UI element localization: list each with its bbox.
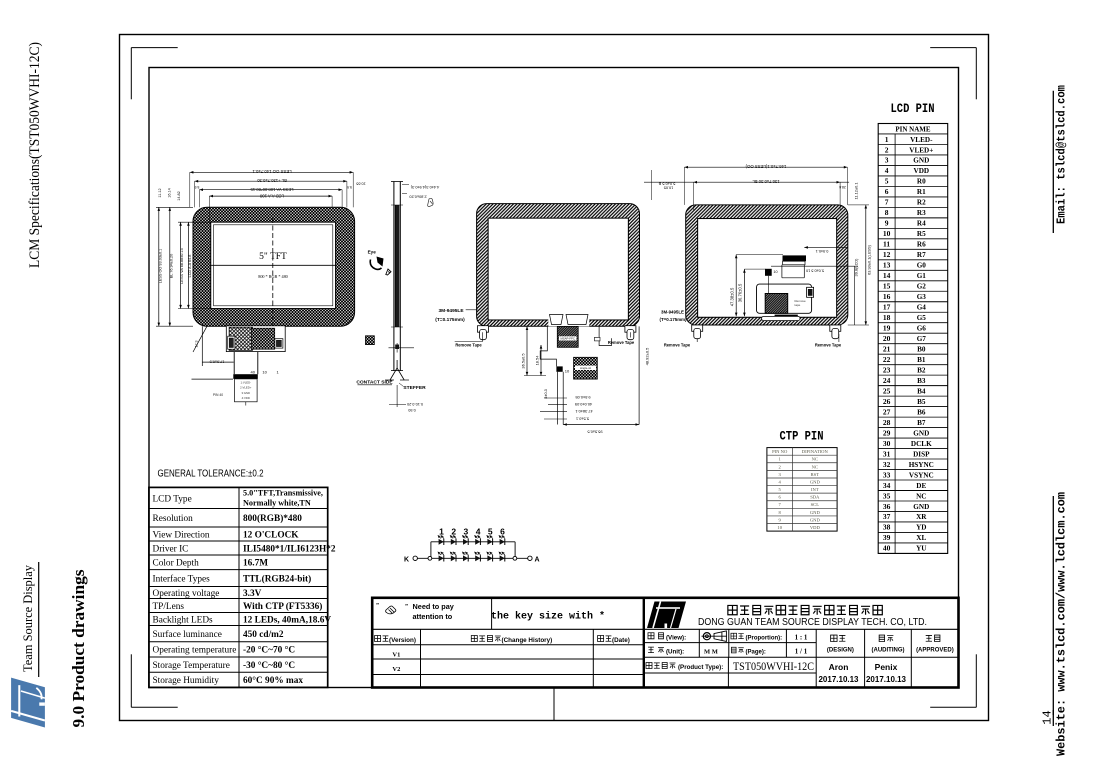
svg-text:TP/Lens: TP/Lens: [153, 602, 185, 612]
svg-text:4±0.3: 4±0.3: [543, 389, 548, 399]
svg-text:XR: XR: [916, 513, 927, 521]
svg-text:STEFFER: STEFFER: [403, 385, 426, 391]
svg-text:G4: G4: [917, 304, 927, 312]
svg-text:34: 34: [883, 481, 891, 490]
svg-text:2:VLED+: 2:VLED+: [240, 386, 252, 390]
svg-text:Website: www.tslcd.com/www.lcd: Website: www.tslcd.com/www.lcdlcm.com: [1055, 492, 1069, 756]
svg-text:CTP PIN: CTP PIN: [780, 430, 824, 444]
svg-text:5.9: 5.9: [195, 185, 200, 189]
svg-text:15: 15: [883, 282, 891, 291]
svg-text:R4: R4: [917, 220, 926, 228]
svg-text:11: 11: [883, 240, 890, 249]
svg-text:R7: R7: [917, 251, 926, 259]
svg-text:16.7M: 16.7M: [243, 559, 268, 569]
svg-text:60°C 90% max: 60°C 90% max: [243, 675, 303, 686]
svg-text:6: 6: [885, 187, 889, 196]
svg-text:LCD A.A 64.8: LCD A.A 64.8: [188, 255, 192, 278]
svg-text:K: K: [404, 556, 409, 563]
svg-text:(AUDITING): (AUDITING): [872, 648, 905, 654]
svg-text:R5: R5: [917, 230, 926, 238]
svg-text:12 LEDs, 40mA,18.6V: 12 LEDs, 40mA,18.6V: [243, 615, 331, 625]
svg-text:G5: G5: [917, 314, 927, 322]
svg-text:R6: R6: [917, 241, 926, 249]
svg-text:13: 13: [883, 261, 891, 270]
svg-text:5.0±0.5 10: 5.0±0.5 10: [806, 268, 824, 272]
svg-text:B3: B3: [917, 377, 926, 385]
svg-text:9.5±0.05: 9.5±0.05: [575, 395, 590, 400]
svg-text:16.14: 16.14: [168, 188, 172, 198]
svg-text:48.92±0.5: 48.92±0.5: [644, 347, 649, 366]
svg-text:18: 18: [883, 313, 891, 322]
svg-text:Email: tslcd@tslcd.com: Email: tslcd@tslcd.com: [1056, 85, 1069, 224]
svg-text:2017.10.13: 2017.10.13: [818, 675, 859, 684]
svg-text:RST: RST: [811, 472, 820, 477]
svg-text:LESS OO 93.03±0.1: LESS OO 93.03±0.1: [158, 249, 162, 284]
svg-text:4: 4: [885, 166, 889, 175]
svg-text:47.38±0.1: 47.38±0.1: [575, 409, 592, 414]
svg-text:5" TFT: 5" TFT: [259, 252, 287, 262]
svg-text:38: 38: [883, 523, 891, 532]
svg-text:3:GND: 3:GND: [242, 391, 251, 395]
svg-text:B5: B5: [917, 398, 926, 406]
svg-text:GND: GND: [913, 503, 929, 511]
svg-text:37: 37: [883, 512, 891, 521]
svg-text:4.4±0.3(4.9±0.3): 4.4±0.3(4.9±0.3): [410, 185, 439, 190]
svg-text:VDD: VDD: [914, 167, 930, 175]
svg-text:”: ”: [376, 603, 379, 609]
svg-text:8: 8: [885, 208, 889, 217]
svg-text:PIN NO: PIN NO: [772, 449, 788, 454]
svg-text:4: 4: [476, 527, 481, 537]
svg-text:B1: B1: [917, 356, 926, 364]
svg-text:Remove Tape: Remove Tape: [608, 340, 635, 345]
svg-text:24: 24: [883, 376, 891, 385]
svg-text:VSYNC: VSYNC: [909, 471, 934, 479]
svg-text:”: ”: [405, 604, 408, 610]
svg-text:Surface luminance: Surface luminance: [153, 629, 222, 640]
svg-text:12: 12: [883, 250, 891, 259]
svg-text:Remove Tape: Remove Tape: [664, 343, 691, 348]
svg-text:(DESIGN): (DESIGN): [827, 648, 854, 654]
svg-text:9.0 Product drawings: 9.0 Product drawings: [69, 569, 88, 727]
svg-text:GND: GND: [810, 517, 821, 522]
svg-text:40: 40: [250, 370, 255, 375]
svg-text:Operating voltage: Operating voltage: [153, 589, 220, 599]
svg-text:(Product Type):: (Product Type):: [678, 664, 723, 671]
svg-text:SCL: SCL: [811, 502, 820, 507]
svg-text:Normally white,TN: Normally white,TN: [243, 498, 311, 507]
svg-text:10: 10: [565, 369, 570, 374]
svg-text:DONG GUAN TEAM SOURCE DISPLAY: DONG GUAN TEAM SOURCE DISPLAY TECH. CO, …: [698, 617, 927, 628]
svg-text:3: 3: [464, 527, 469, 537]
svg-text:Storage Humidity: Storage Humidity: [153, 676, 220, 686]
svg-text:LESS VA 68.88±0.15: LESS VA 68.88±0.15: [180, 248, 184, 283]
svg-text:22: 22: [883, 355, 891, 364]
svg-text:TST050WVHI-12C: TST050WVHI-12C: [733, 661, 814, 673]
svg-text:INT: INT: [811, 487, 819, 492]
svg-text:3M-9495LE: 3M-9495LE: [661, 310, 684, 315]
svg-text:9: 9: [885, 219, 889, 228]
svg-text:B7: B7: [917, 419, 926, 427]
svg-text:20: 20: [883, 334, 891, 343]
svg-text:47.38±0.5: 47.38±0.5: [730, 287, 735, 306]
svg-text:30: 30: [883, 439, 891, 448]
svg-text:28: 28: [883, 418, 891, 427]
svg-text:NC: NC: [812, 457, 818, 462]
svg-text:BL 76.94±0.20: BL 76.94±0.20: [169, 254, 173, 279]
svg-text:2: 2: [451, 527, 456, 537]
svg-text:LESS OO 140.7±0.1: LESS OO 140.7±0.1: [252, 169, 292, 174]
svg-text:12 O'CLOCK: 12 O'CLOCK: [243, 530, 299, 540]
svg-text:3: 3: [885, 156, 889, 165]
svg-text:0.10-0.20: 0.10-0.20: [407, 402, 423, 406]
svg-text:25: 25: [883, 386, 891, 395]
svg-text:(View):: (View):: [666, 634, 686, 641]
svg-text:Backlight LEDs: Backlight LEDs: [153, 615, 214, 625]
svg-text:10.65: 10.65: [356, 182, 366, 186]
svg-text:B4: B4: [917, 387, 926, 395]
svg-text:LESS VA 108.00*80.15: LESS VA 108.00*80.15: [250, 187, 294, 192]
svg-text:PIN 40: PIN 40: [213, 393, 223, 397]
svg-text:(Proportion):: (Proportion):: [746, 635, 783, 641]
svg-text:18.54: 18.54: [535, 355, 540, 366]
svg-text:GND: GND: [913, 157, 929, 165]
svg-text:19: 19: [883, 324, 891, 333]
svg-text:SDA: SDA: [810, 495, 820, 500]
svg-text:CONTACT SIDE: CONTACT SIDE: [356, 379, 393, 385]
svg-text:(Version): (Version): [389, 637, 416, 644]
svg-text:G2: G2: [917, 283, 927, 291]
svg-text:5: 5: [488, 527, 493, 537]
svg-text:39.8(LCD): 39.8(LCD): [854, 258, 859, 277]
svg-text:14: 14: [883, 271, 891, 280]
svg-text:39: 39: [883, 533, 891, 542]
svg-text:the key size with *: the key size with *: [491, 611, 605, 623]
svg-text:G6: G6: [917, 325, 927, 333]
svg-text:11.12±0.1: 11.12±0.1: [854, 183, 859, 200]
svg-text:R0: R0: [917, 178, 926, 186]
svg-text:10.05: 10.05: [664, 185, 674, 189]
svg-text:R3: R3: [917, 209, 926, 217]
svg-text:3M-9495LE: 3M-9495LE: [438, 308, 464, 314]
svg-text:6: 6: [500, 527, 505, 537]
svg-text:-30 °C~80 °C: -30 °C~80 °C: [243, 660, 295, 671]
svg-text:36.76±0.5: 36.76±0.5: [738, 283, 743, 302]
svg-text:10: 10: [773, 270, 777, 274]
svg-text:1:VLED-: 1:VLED-: [241, 381, 252, 385]
svg-text:Eye: Eye: [368, 249, 377, 254]
svg-text:29: 29: [883, 428, 891, 437]
svg-text:(APPROVED): (APPROVED): [916, 648, 954, 654]
svg-text:V2: V2: [392, 666, 400, 673]
svg-text:VDD: VDD: [810, 525, 821, 530]
svg-text:NC: NC: [812, 464, 818, 469]
svg-text:32: 32: [883, 460, 891, 469]
svg-text:10: 10: [262, 370, 267, 375]
svg-text:7: 7: [885, 198, 889, 207]
svg-text:R1: R1: [917, 188, 926, 196]
svg-text:LCD PIN: LCD PIN: [891, 102, 935, 116]
svg-text:(Page):: (Page):: [746, 649, 766, 655]
svg-text:Operating temperature: Operating temperature: [153, 646, 237, 656]
svg-text:Remove Tape: Remove Tape: [815, 343, 842, 348]
svg-text:(Date): (Date): [612, 637, 630, 644]
svg-text:0.9±0.1: 0.9±0.1: [816, 249, 829, 253]
svg-text:NC: NC: [916, 492, 926, 500]
svg-text:VLED-: VLED-: [910, 136, 933, 144]
svg-text:B0: B0: [917, 345, 926, 353]
svg-text:View Direction: View Direction: [153, 530, 210, 540]
svg-text:DE: DE: [916, 482, 926, 490]
svg-text:1 : 1: 1 : 1: [795, 634, 808, 642]
svg-text:MSAP-FPC: MSAP-FPC: [560, 337, 574, 341]
svg-text:31: 31: [883, 449, 891, 458]
svg-text:-20 °C~70 °C: -20 °C~70 °C: [243, 645, 295, 656]
svg-text:21: 21: [883, 344, 891, 353]
svg-text:GND: GND: [810, 510, 821, 515]
svg-text:63.93±0.1(LESS): 63.93±0.1(LESS): [866, 244, 871, 275]
svg-text:G1: G1: [917, 272, 927, 280]
svg-text:14: 14: [1041, 710, 1055, 724]
svg-text:Team Source Display: Team Source Display: [20, 565, 35, 672]
svg-text:R2: R2: [917, 199, 926, 207]
svg-text:2: 2: [885, 145, 889, 154]
svg-text:Storage Temperature: Storage Temperature: [153, 661, 230, 671]
svg-text:Remove Tape: Remove Tape: [455, 343, 482, 348]
svg-text:26: 26: [883, 397, 891, 406]
svg-text:LCD Type: LCD Type: [153, 494, 192, 504]
svg-text:2.80±0.20: 2.80±0.20: [409, 194, 427, 199]
svg-text:17.9±0.5: 17.9±0.5: [210, 359, 225, 363]
svg-text:With CTP (FT5336): With CTP (FT5336): [243, 601, 322, 612]
svg-text:XL: XL: [916, 534, 926, 542]
svg-text:5.0"TFT,Transmissive,: 5.0"TFT,Transmissive,: [243, 488, 323, 497]
svg-text:1: 1: [885, 135, 889, 144]
svg-text:3.3V: 3.3V: [243, 589, 262, 599]
svg-text:G7: G7: [917, 335, 927, 343]
svg-text:23: 23: [883, 365, 891, 374]
svg-text:single-sti: single-sti: [580, 366, 591, 370]
svg-text:12.3: 12.3: [195, 341, 199, 348]
svg-text:YU: YU: [916, 545, 927, 553]
svg-text:36: 36: [883, 502, 891, 511]
svg-text:14.82: 14.82: [177, 191, 181, 201]
svg-text:2017.10.13: 2017.10.13: [866, 675, 907, 684]
svg-text:ILI5480*1/ILI6123H*2: ILI5480*1/ILI6123H*2: [243, 544, 336, 554]
svg-text:17: 17: [883, 303, 891, 312]
svg-text:35: 35: [883, 491, 891, 500]
svg-text:1 / 1: 1 / 1: [795, 648, 808, 656]
svg-text:146.7±0.1(LESS OO): 146.7±0.1(LESS OO): [745, 164, 786, 169]
svg-text:5.5±0.1: 5.5±0.1: [576, 416, 589, 421]
svg-text:VLED+: VLED+: [909, 146, 933, 154]
svg-text:5.9: 5.9: [347, 185, 352, 189]
svg-text:G3: G3: [917, 293, 927, 301]
svg-text:A: A: [534, 556, 539, 563]
svg-text:(Change History): (Change History): [502, 637, 553, 644]
svg-text:10: 10: [883, 229, 891, 238]
svg-text:Resolution: Resolution: [153, 514, 194, 524]
svg-text:B6: B6: [917, 408, 926, 416]
svg-text:(Unit):: (Unit):: [666, 648, 684, 655]
svg-text:10: 10: [777, 525, 782, 530]
svg-text:16: 16: [883, 292, 891, 301]
svg-text:Penix: Penix: [875, 662, 898, 672]
svg-text:LCD A.A 108: LCD A.A 108: [259, 193, 284, 198]
svg-text:40.0±0.05: 40.0±0.05: [575, 402, 592, 407]
svg-text:33: 33: [883, 470, 891, 479]
svg-text:27: 27: [883, 407, 891, 416]
svg-text:G0: G0: [917, 262, 927, 270]
svg-text:M M: M M: [704, 648, 718, 655]
svg-text:130.7±0.30 BL: 130.7±0.30 BL: [752, 179, 780, 184]
svg-text:attention to: attention to: [413, 612, 453, 621]
svg-text:36.5±0.5: 36.5±0.5: [521, 353, 526, 368]
svg-text:tape: tape: [795, 303, 801, 307]
svg-text:GND: GND: [913, 429, 929, 437]
svg-text:GENERAL TOLERANCE:±0.2: GENERAL TOLERANCE:±0.2: [158, 469, 264, 480]
svg-text:4:VDD: 4:VDD: [242, 396, 250, 400]
svg-text:PIN NAME: PIN NAME: [895, 125, 931, 133]
svg-text:(T=0.175mm): (T=0.175mm): [660, 317, 688, 322]
svg-text:TTL(RGB24-bit): TTL(RGB24-bit): [243, 573, 311, 584]
svg-text:0.50: 0.50: [408, 408, 415, 412]
svg-text:GND: GND: [810, 479, 821, 484]
svg-text:DIFINATION: DIFINATION: [802, 449, 829, 454]
svg-text:V1: V1: [392, 651, 400, 658]
svg-text:HSYNC: HSYNC: [909, 461, 934, 469]
svg-text:LCM Specifications(TST050WVHI-: LCM Specifications(TST050WVHI-12C): [27, 42, 43, 268]
svg-text:(T=0.175mm): (T=0.175mm): [435, 317, 465, 323]
svg-text:5: 5: [885, 177, 889, 186]
svg-text:Aron: Aron: [829, 662, 849, 672]
svg-text:Driver IC: Driver IC: [153, 544, 189, 554]
svg-text:95.5±0.5: 95.5±0.5: [587, 430, 602, 435]
svg-text:Color Depth: Color Depth: [153, 559, 200, 569]
svg-text:BL +130.7±0.30: BL +130.7±0.30: [257, 178, 287, 183]
svg-text:Interface Types: Interface Types: [153, 573, 211, 584]
svg-text:800(RGB)*480: 800(RGB)*480: [243, 513, 302, 524]
svg-text:1: 1: [439, 527, 444, 537]
svg-text:B2: B2: [917, 366, 926, 374]
svg-text:DCLK: DCLK: [911, 440, 932, 448]
svg-text:YD: YD: [916, 524, 926, 532]
svg-text:11.12: 11.12: [158, 188, 162, 197]
svg-text:DISP: DISP: [913, 450, 930, 458]
svg-text:40: 40: [883, 544, 891, 553]
svg-text:800 * RGB * 480: 800 * RGB * 480: [258, 274, 288, 279]
svg-text:Need to pay: Need to pay: [413, 602, 455, 611]
svg-text:450 cd/m2: 450 cd/m2: [243, 630, 284, 640]
